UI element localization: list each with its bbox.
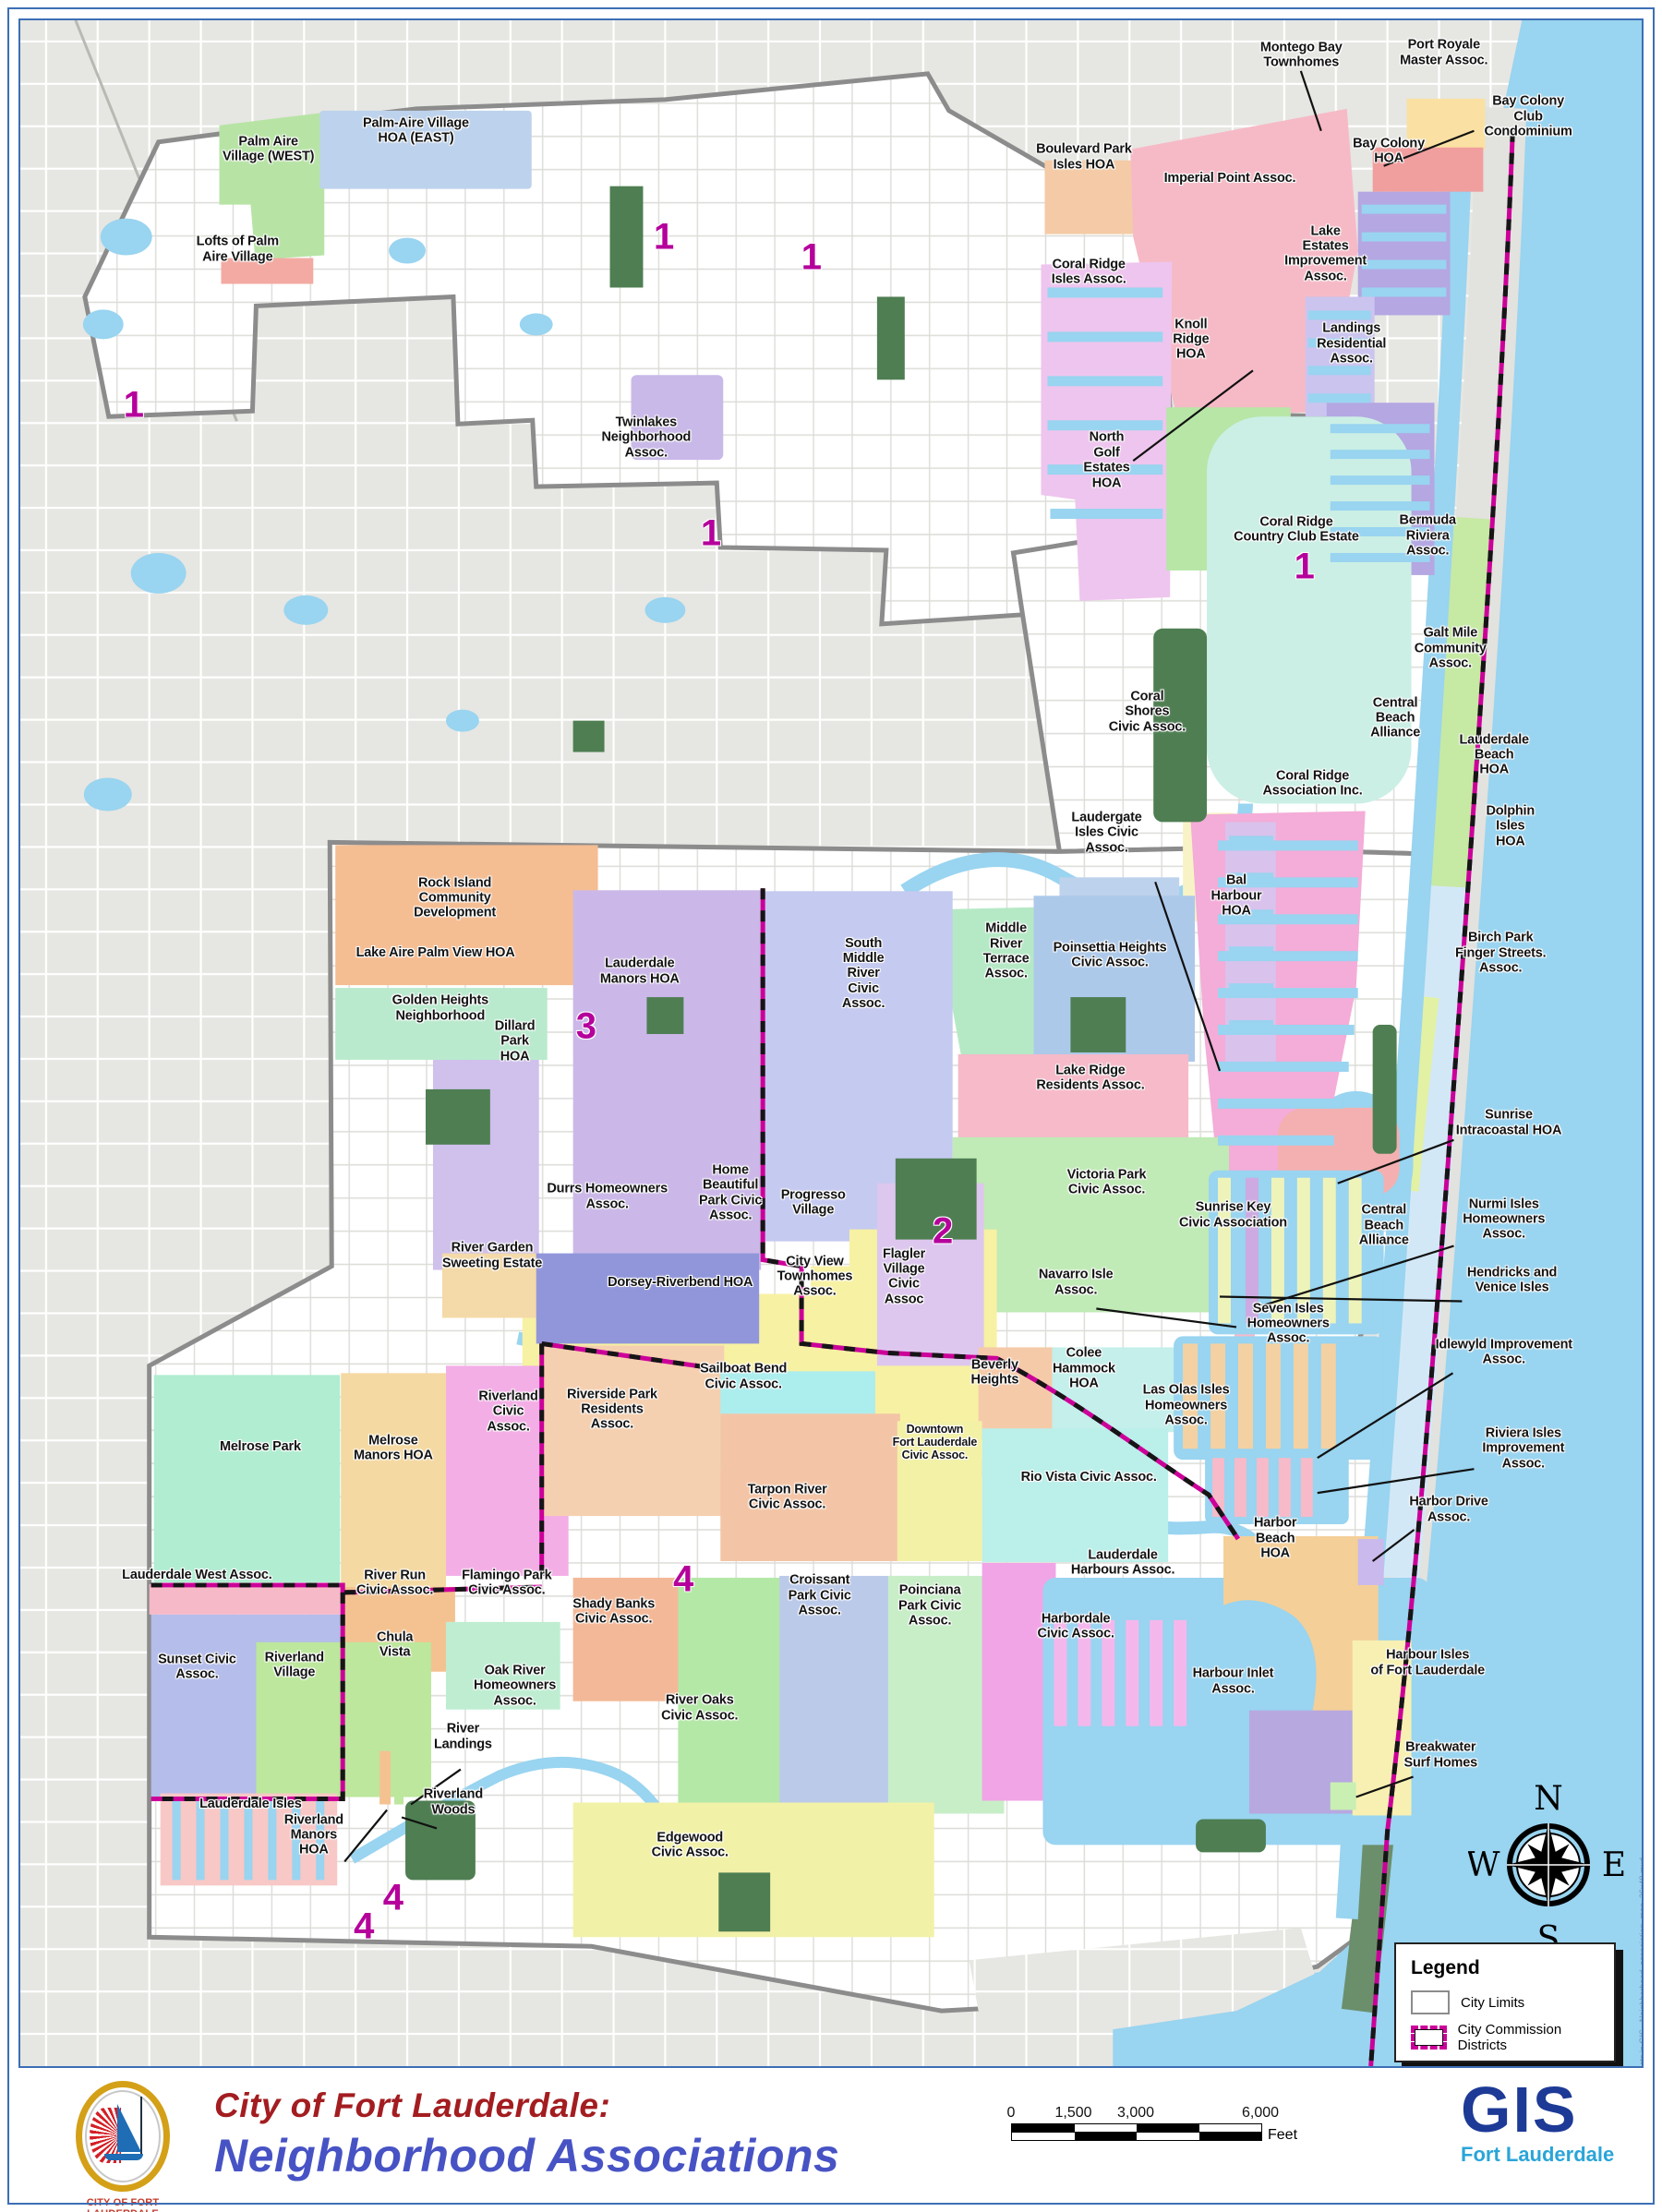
legend: Legend City Limits City Commission Distr… — [1394, 1942, 1616, 2062]
map-title-line2: Neighborhood Associations — [214, 2129, 839, 2182]
legend-item-commission-districts: City Commission Districts — [1411, 2022, 1599, 2053]
scale-tick: 6,000 — [1242, 2105, 1279, 2122]
gis-logo-subtext: Fort Lauderdale — [1461, 2143, 1614, 2167]
district-number-1: 1 — [801, 237, 822, 279]
legend-item-label: City Limits — [1461, 1995, 1524, 2011]
district-number-2: 2 — [933, 1210, 953, 1252]
scale-tick: 3,000 — [1117, 2105, 1154, 2122]
footer-bar: CITY OF FORT LAUDERDALE City of Fort Lau… — [18, 2070, 1644, 2199]
gis-logo: GIS Fort Lauderdale — [1461, 2079, 1614, 2167]
district-number-3: 3 — [576, 1006, 596, 1048]
district-number-4: 4 — [354, 1906, 374, 1948]
map-page: Palm Aire Village (WEST)Palm-Aire Villag… — [0, 0, 1662, 2212]
district-numbers: 1111132444 — [20, 20, 1642, 2066]
legend-item-label: City Commission Districts — [1458, 2022, 1599, 2053]
gis-logo-text: GIS — [1461, 2079, 1614, 2141]
map-source-note: Projects in GIS - Neighborhood_associati… — [1638, 1857, 1644, 2068]
district-number-4: 4 — [673, 1558, 693, 1600]
district-number-4: 4 — [383, 1878, 403, 1919]
district-number-1: 1 — [701, 513, 721, 555]
district-number-1: 1 — [654, 216, 674, 258]
map-canvas: Palm Aire Village (WEST)Palm-Aire Villag… — [18, 18, 1644, 2068]
city-limits-swatch — [1411, 1990, 1450, 2014]
scale-tick: 0 — [1007, 2105, 1016, 2122]
legend-item-city-limits: City Limits — [1411, 1990, 1599, 2014]
district-number-1: 1 — [1295, 546, 1315, 587]
scale-bar-graphic — [1011, 2123, 1262, 2141]
city-seal-icon — [76, 2081, 170, 2192]
city-seal-logo: CITY OF FORT LAUDERDALE — [54, 2081, 192, 2212]
legend-title: Legend — [1411, 1957, 1599, 1979]
city-seal-caption: CITY OF FORT LAUDERDALE — [54, 2197, 192, 2212]
scale-bar: 0 1,500 3,000 6,000 Feet — [1011, 2105, 1260, 2141]
map-title-line1: City of Fort Lauderdale: — [214, 2086, 839, 2125]
scale-ticks: 0 1,500 3,000 6,000 — [1011, 2105, 1260, 2123]
map-title: City of Fort Lauderdale: Neighborhood As… — [214, 2086, 839, 2182]
scale-tick: 1,500 — [1054, 2105, 1091, 2122]
scale-unit: Feet — [1268, 2127, 1297, 2144]
district-number-1: 1 — [124, 384, 144, 426]
commission-districts-swatch — [1411, 2026, 1447, 2050]
